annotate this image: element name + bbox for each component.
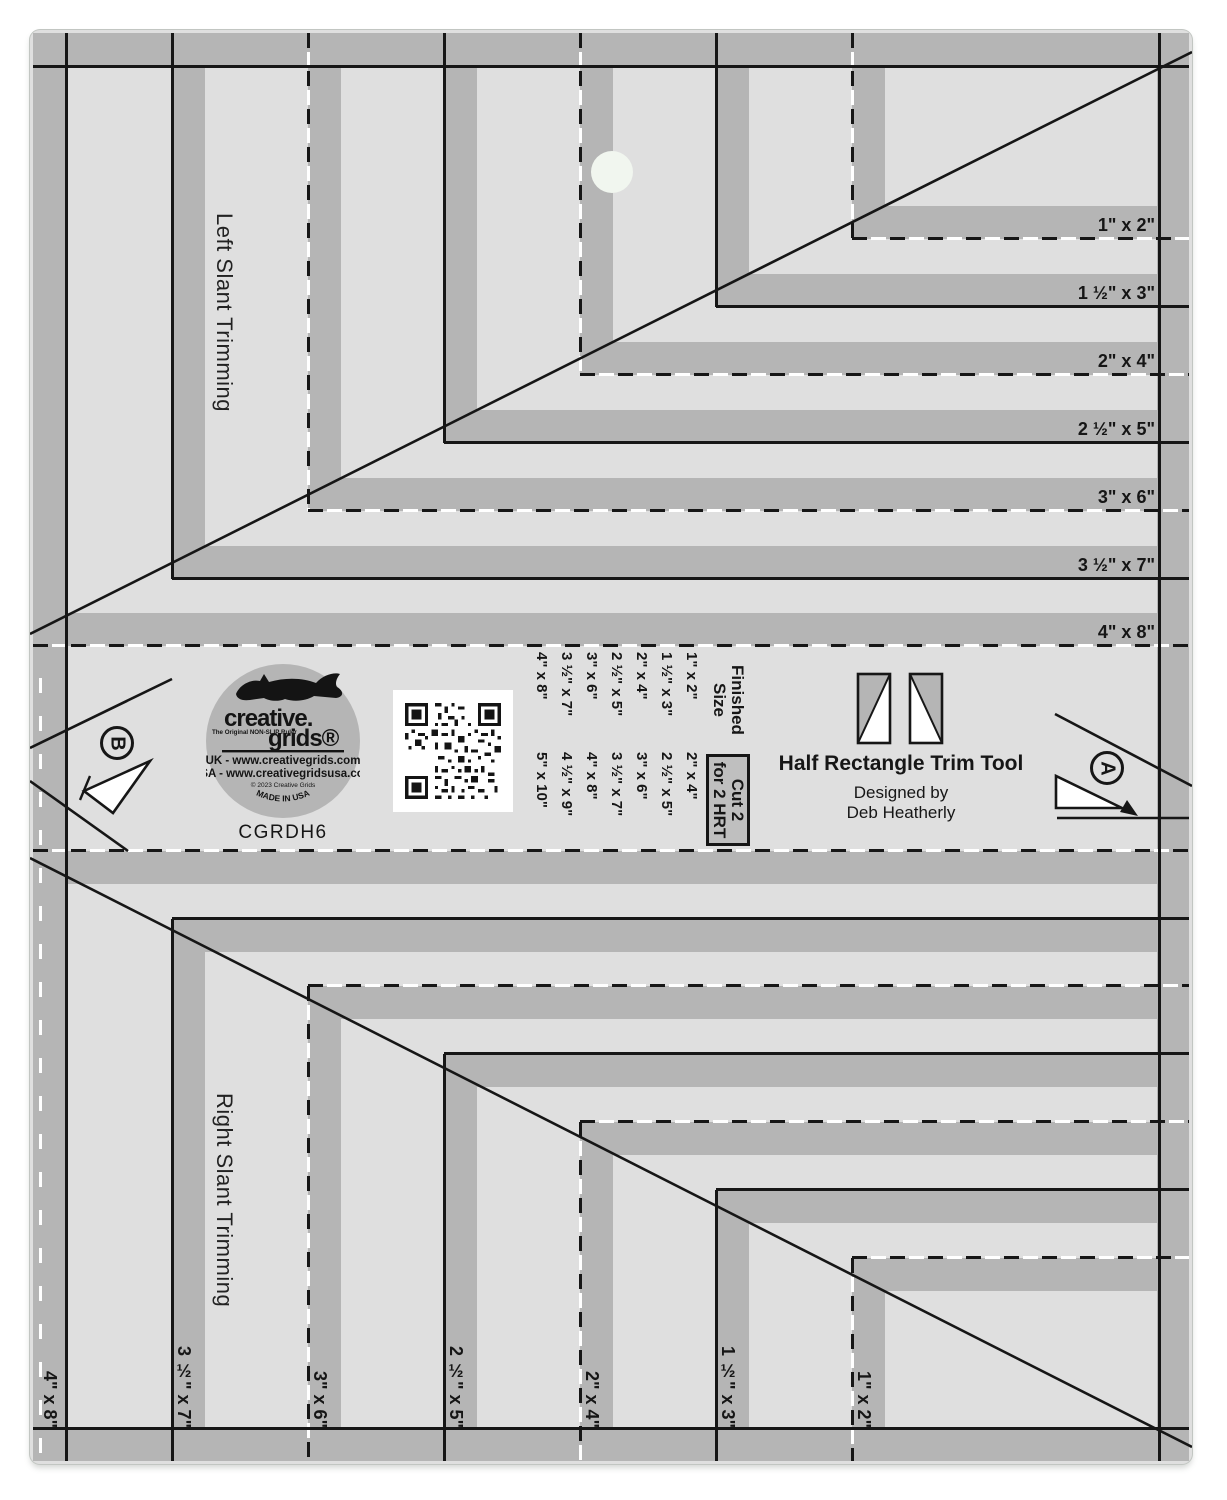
product-image: Left Slant Trimming Right Slant Trimming… <box>0 0 1227 1500</box>
guide-dashed-line <box>308 509 1189 512</box>
cut-size-cell: 4" x 8" <box>579 750 604 850</box>
guide-horizontal-band <box>308 986 1160 1019</box>
interior-border-left <box>65 33 68 1461</box>
interior-border-bottom <box>33 1427 1189 1430</box>
header-line: Size <box>710 683 728 717</box>
b-pointer-tick <box>80 776 90 800</box>
size-label-bottom: 4" x 8" <box>41 1371 59 1428</box>
designer-byline: Designed by <box>691 783 1111 803</box>
size-label-top: 2" x 4" <box>935 349 1155 373</box>
size-label-top: 3 ½" x 7" <box>935 553 1155 577</box>
ruler-edge-bottom <box>33 1427 1189 1461</box>
size-label-top: 4" x 8" <box>935 620 1155 644</box>
guide-horizontal-band <box>67 851 1160 884</box>
guide-dashed-line <box>852 1256 1189 1259</box>
guide-dashed-line <box>580 1120 1189 1123</box>
guide-dashed-line <box>307 33 310 511</box>
size-label-top: 2 ½" x 5" <box>935 417 1155 441</box>
triangle-pointer-b-icon <box>84 761 150 813</box>
guide-horizontal-band <box>852 1258 1160 1291</box>
finished-size-header: Finished Size <box>704 650 752 750</box>
guide-dashed-line <box>308 984 1189 987</box>
finished-size-cell: 1 ½" x 3" <box>654 650 679 750</box>
size-label-bottom: 3" x 6" <box>311 1371 329 1428</box>
copyright-text: © 2023 Creative Grids <box>251 781 316 789</box>
size-table-row: 2 ½" x 5"3 ½" x 7" <box>604 650 629 850</box>
size-label-top: 1 ½" x 3" <box>935 281 1155 305</box>
size-label-top: 3" x 6" <box>935 485 1155 509</box>
model-number: CGRDH6 <box>206 822 360 844</box>
cut-size-cell: 3 ½" x 7" <box>604 750 629 850</box>
marker-b-letter: B <box>105 736 128 750</box>
marker-a-letter: A <box>1095 761 1118 775</box>
left-slant-section-label: Left Slant Trimming <box>211 213 237 412</box>
cut-size-cell: 3" x 6" <box>629 750 654 850</box>
qr-pattern <box>405 703 501 799</box>
cut-size-cell: 4 ½" x 9" <box>554 750 579 850</box>
finished-size-cell: 3 ½" x 7" <box>554 650 579 750</box>
brand-logo-badge: creative. The Original NON-SLIP Ruler gr… <box>206 664 360 818</box>
brand-name-secondary: grids® <box>268 725 340 752</box>
guide-dashed-line <box>33 644 1189 647</box>
guide-dashed-line <box>580 373 1189 376</box>
guide-horizontal-band <box>580 1122 1160 1155</box>
size-label-bottom: 3 ½" x 7" <box>175 1346 193 1428</box>
guide-dashed-line <box>851 1258 854 1461</box>
size-label-top: 1" x 2" <box>935 213 1155 237</box>
size-table-row: 1 ½" x 3"2 ½" x 5" <box>654 650 679 850</box>
guide-vertical-band <box>172 33 205 579</box>
size-table-row: 2" x 4"3" x 6" <box>629 650 654 850</box>
guide-horizontal-band <box>172 919 1160 952</box>
size-label-bottom: 1 ½" x 3" <box>719 1346 737 1428</box>
marker-b: B <box>100 726 134 760</box>
cut-size-cell: 5" x 10" <box>529 750 554 850</box>
marker-a: A <box>1090 751 1124 785</box>
uk-website: UK - www.creativegrids.com <box>206 755 360 767</box>
brand-logo: creative. The Original NON-SLIP Ruler gr… <box>206 664 360 818</box>
size-label-bottom: 2" x 4" <box>583 1371 601 1428</box>
guide-dashed-line <box>852 237 1189 240</box>
finished-size-cell: 2" x 4" <box>629 650 654 750</box>
guide-solid-line <box>444 441 1189 444</box>
hrt-unit-icon-right <box>910 674 942 743</box>
guide-solid-line <box>443 33 446 443</box>
guide-vertical-band <box>716 33 749 307</box>
finished-size-cell: 1" x 2" <box>679 650 704 750</box>
guide-solid-line <box>716 305 1189 308</box>
guide-vertical-band <box>308 986 341 1430</box>
guide-dashed-line <box>579 33 582 375</box>
guide-solid-line <box>715 33 718 307</box>
finished-size-cell: 3" x 6" <box>579 650 604 750</box>
tool-title: Half Rectangle Trim Tool <box>691 752 1111 776</box>
finished-size-cell: 4" x 8" <box>529 650 554 750</box>
header-line: Finished <box>728 665 746 735</box>
usa-website: USA - www.creativegridsusa.com <box>206 768 360 780</box>
finished-size-cell: 2 ½" x 5" <box>604 650 629 750</box>
interior-border-top <box>33 65 1189 68</box>
cut-size-cell: 2 ½" x 5" <box>654 750 679 850</box>
ruler-edge-right <box>1157 33 1189 1461</box>
guide-horizontal-band <box>444 1054 1160 1087</box>
designer-name: Deb Heatherly <box>691 803 1111 823</box>
guide-dashed-line <box>39 678 42 1461</box>
tool-title-block: Half Rectangle Trim Tool Designed by Deb… <box>691 752 1111 823</box>
a-pointer-shaft <box>1122 808 1132 813</box>
size-table-row: 4" x 8"5" x 10" <box>529 650 554 850</box>
right-slant-section-label: Right Slant Trimming <box>211 1093 237 1307</box>
guide-vertical-band <box>308 33 341 511</box>
a-pointer-arrowhead-icon <box>1120 800 1138 816</box>
hrt-unit-icon-left <box>858 674 890 743</box>
guide-vertical-band <box>444 33 477 443</box>
guide-horizontal-band <box>716 1190 1160 1223</box>
qr-code <box>393 690 513 812</box>
size-label-bottom: 1" x 2" <box>855 1371 873 1428</box>
logo-divider <box>222 750 344 752</box>
size-table-row: 3" x 6"4" x 8" <box>579 650 604 850</box>
ruler-body: Left Slant Trimming Right Slant Trimming… <box>30 30 1192 1464</box>
guide-solid-line <box>171 33 174 579</box>
guide-vertical-band <box>580 33 613 375</box>
guide-solid-line <box>716 1188 1189 1191</box>
guide-solid-line <box>172 577 1189 580</box>
interior-border-right <box>1158 33 1161 1461</box>
guide-solid-line <box>444 1052 1189 1055</box>
guide-dashed-line <box>851 33 854 239</box>
size-table-row: 3 ½" x 7"4 ½" x 9" <box>554 650 579 850</box>
size-label-bottom: 2 ½" x 5" <box>447 1346 465 1428</box>
guide-solid-line <box>172 917 1189 920</box>
